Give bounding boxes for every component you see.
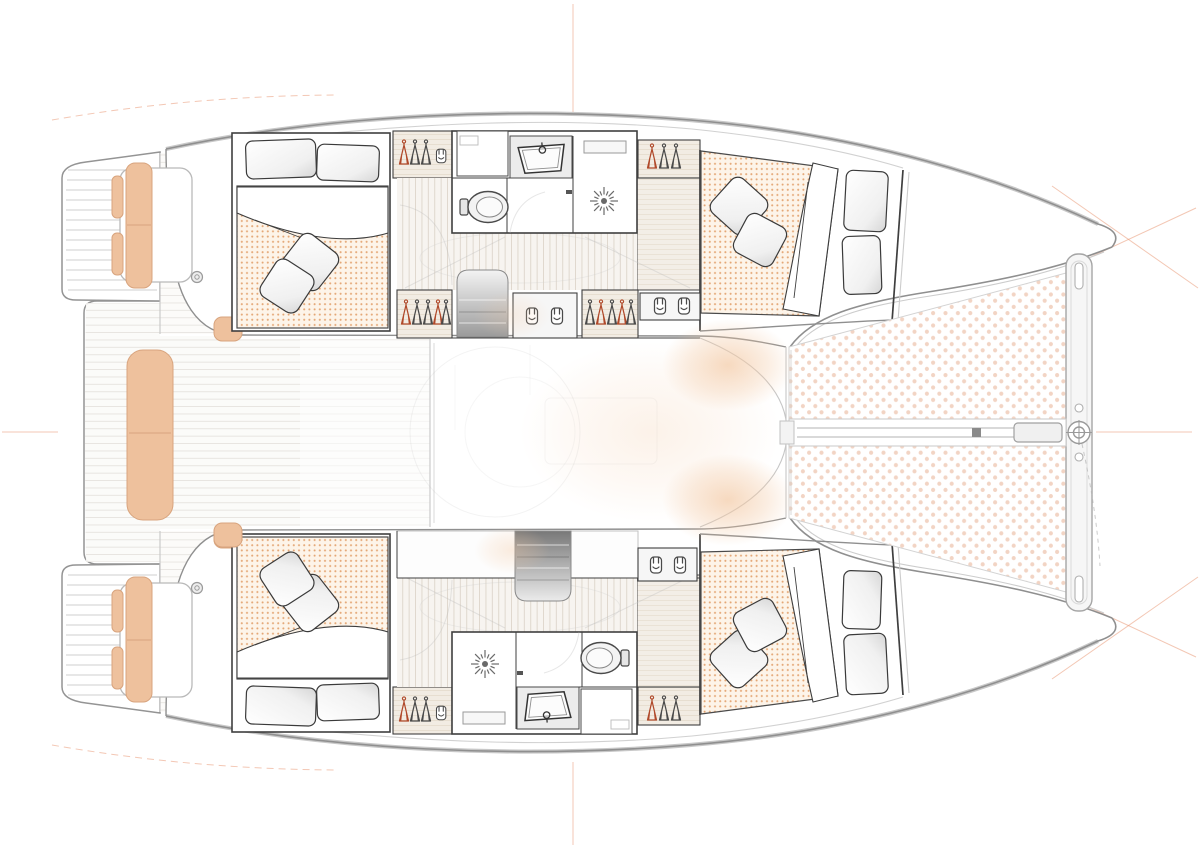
- catamaran-floorplan-canvas: Catamaran interior layout — overhead flo…: [0, 0, 1200, 848]
- bathroom-port: [452, 131, 637, 233]
- shoe-locker: [640, 293, 700, 320]
- counter: [571, 531, 638, 578]
- bathroom-starboard: [452, 632, 637, 734]
- bowsprit: [1014, 423, 1062, 442]
- beam-slot: [1075, 576, 1083, 602]
- warm-glow: [474, 526, 550, 574]
- boot-icon: [552, 308, 563, 324]
- aft-bench-cushion: [127, 350, 173, 520]
- boot-icon: [655, 298, 666, 314]
- boot-icon: [675, 557, 686, 573]
- cockpit-corner-cushion: [214, 523, 242, 547]
- boot-icon: [436, 706, 445, 720]
- boot-icon: [651, 557, 662, 573]
- beam-bolt: [1075, 453, 1083, 461]
- shoe-locker: [638, 548, 697, 581]
- beam-slot: [1075, 263, 1083, 289]
- warm-glow: [520, 342, 780, 522]
- warm-glow: [474, 291, 550, 339]
- beam-bolt: [1075, 404, 1083, 412]
- boot-icon: [679, 298, 690, 314]
- floorplan-page: Catamaran interior layout — overhead flo…: [0, 0, 1200, 848]
- bowsprit-fitting: [972, 428, 981, 437]
- boot-icon: [436, 149, 445, 163]
